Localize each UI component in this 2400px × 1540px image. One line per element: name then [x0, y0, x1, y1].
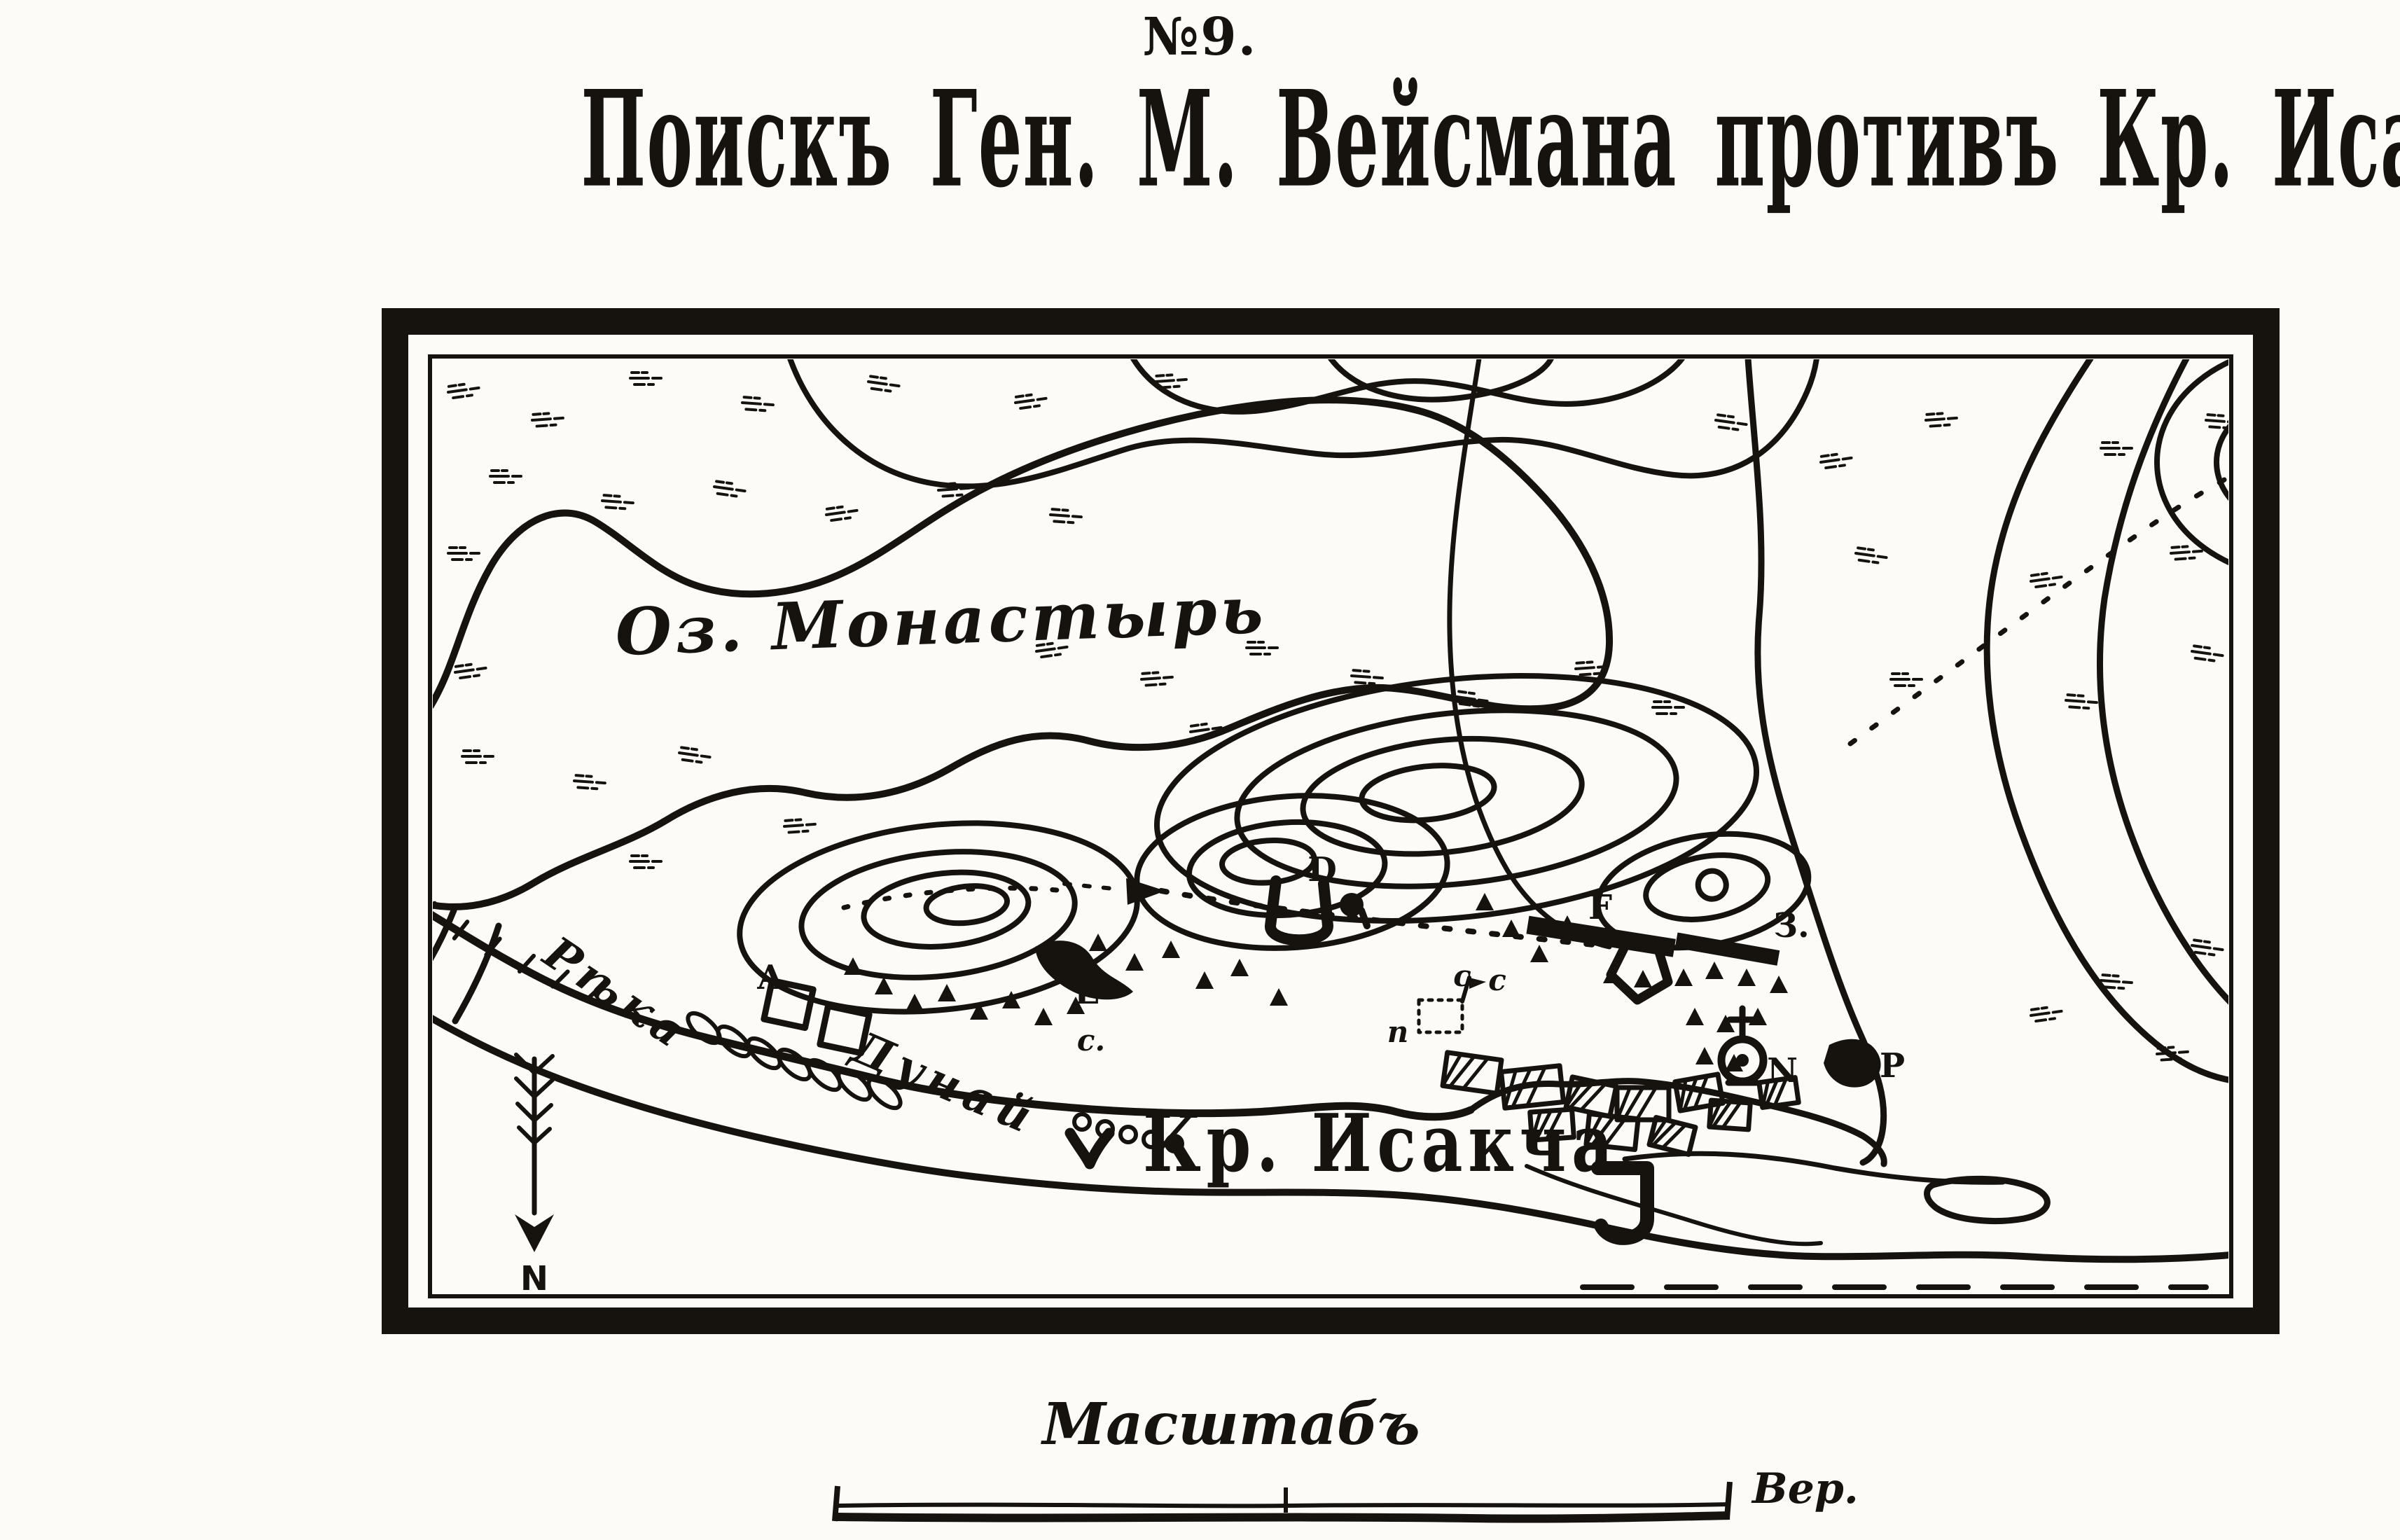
marker-picket-3: п	[1387, 1015, 1409, 1049]
marsh-field	[448, 373, 2238, 1060]
marker-picket-1: с	[1453, 959, 1471, 993]
marker-D: D	[1307, 850, 1337, 889]
marker-E: E	[1074, 973, 1100, 1012]
map-canvas: N A D E c. F З. N P с с п Оз. Монастырь …	[0, 0, 2400, 1540]
fortress-label: Кр. Исакча	[1143, 1097, 1618, 1190]
north-label: N	[520, 1259, 548, 1298]
scale-unit-label: Вер.	[1751, 1464, 1859, 1513]
marker-F: F	[1588, 888, 1612, 927]
marker-A: A	[756, 958, 784, 997]
marker-Z: З.	[1773, 906, 1809, 945]
map-sheet: №9. Поискъ Ген. М. Вейсмана противъ Кр. …	[0, 0, 2400, 1540]
shore-wavy-line	[1625, 1153, 2003, 1182]
dotted-track-northeast	[1850, 454, 2275, 744]
marker-N: N	[1767, 1051, 1798, 1090]
scale-bar	[835, 1482, 1730, 1521]
marker-E-sub: c.	[1077, 1023, 1105, 1057]
battery-Z-bar	[1675, 933, 1780, 966]
building-icon	[1649, 1118, 1695, 1155]
marker-picket-2: с	[1488, 963, 1506, 997]
building-icon	[1617, 1088, 1669, 1120]
river-label-2: Дунай	[842, 1020, 1046, 1146]
river-label-1: Рѣка	[533, 926, 698, 1061]
channel-arm-west	[1987, 359, 2252, 1082]
woods-patch-east	[1824, 1039, 1881, 1088]
river-island	[1927, 1179, 2048, 1221]
building-icon	[1443, 1053, 1501, 1093]
scale-title: Масштабъ	[1040, 1391, 1420, 1458]
anchor-mark-icon	[1070, 1133, 1109, 1164]
marker-P: P	[1880, 1046, 1905, 1085]
north-arrow-icon	[515, 1055, 554, 1252]
contours-north-ridge	[790, 359, 1817, 486]
scale-block: Масштабъ Вер.	[835, 1391, 1859, 1521]
picket-square-symbol	[1419, 978, 1486, 1032]
